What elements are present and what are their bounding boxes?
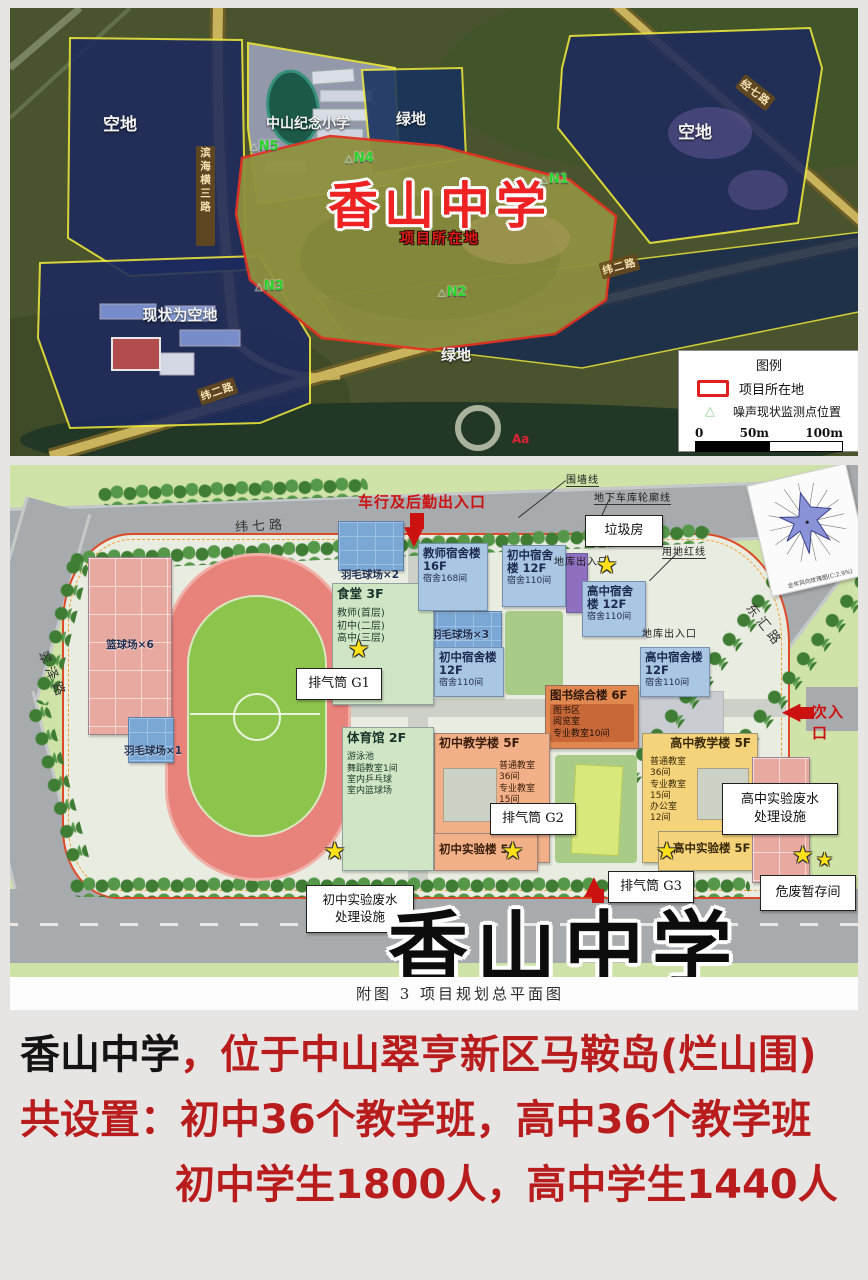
site-plan: 篮球场×6 羽毛球场×1 羽毛球场×2 羽毛球场×3 食堂 3F 教师(首层) … (10, 465, 858, 1010)
monitor-point-n5: N5 (250, 139, 279, 154)
building-name: 初中宿舍楼 12F (435, 648, 503, 677)
building-library: 图书综合楼 6F 图书区 阅览室 专业教室10间 (545, 685, 639, 749)
central-lawn (571, 764, 624, 856)
school-name-text: 香山中学 (20, 1032, 180, 1078)
building-detail: 宿舍110间 (435, 677, 503, 689)
project-subtitle: 项目所在地 (355, 228, 525, 248)
monitor-point-label: N3 (264, 279, 284, 294)
page: 空地 中山纪念小学 绿地 空地 现状为空地 绿地 香山中学 项目所在地 N1 N… (0, 0, 868, 1280)
name-text: 高中教学楼 (670, 736, 730, 750)
scale-labels: 0 50m 100m (695, 426, 843, 440)
building-detail: 宿舍110间 (503, 575, 565, 587)
road-label-weiqi: 纬七路 (235, 514, 287, 536)
entrance-secondary-label: 次入口 (812, 701, 858, 743)
map-legend: 图例 项目所在地 △ 噪声现状监测点位置 0 50m 100m (678, 350, 858, 452)
monitor-star-icon (502, 839, 524, 863)
callout-garbage: 垃圾房 (585, 515, 663, 547)
road-label-binhai: 滨海横三路 (196, 146, 215, 246)
description-line1: 香山中学，位于中山翠亨新区马鞍岛(烂山围) (20, 1022, 817, 1080)
plan-caption: 附图 3 项目规划总平面图 (280, 983, 640, 1004)
building-name: 高中宿舍楼 12F (583, 582, 645, 611)
monitor-point-label: N1 (549, 172, 569, 187)
line-label-garage-exit-b: 地库出入口 (642, 625, 697, 640)
line-label-red-line: 用地红线 (662, 543, 706, 559)
floors-text: 12F (603, 597, 627, 611)
vehicle-entrance-arrow-icon (404, 523, 424, 549)
floors-text: 16F (423, 559, 447, 573)
monitor-star-icon (816, 851, 833, 870)
monitor-point-n2: N2 (438, 285, 467, 300)
building-detail: 普通教室 36间 专业教室 15间 办公室 12间 (646, 756, 698, 825)
scale-bar-segment (769, 442, 843, 451)
callout-hazard: 危废暂存间 (760, 875, 856, 911)
floors-text: 12F (645, 663, 669, 677)
courtyard-garden (505, 611, 563, 695)
scale-bar-segment (696, 442, 769, 451)
site-plan-graphic: 篮球场×6 羽毛球场×1 羽毛球场×2 羽毛球场×3 食堂 3F 教师(首层) … (10, 465, 858, 977)
building-detail: 宿舍110间 (641, 677, 709, 689)
floors-text: 3F (366, 586, 383, 601)
name-text: 图书综合楼 (550, 688, 608, 702)
triangle-icon (438, 285, 447, 300)
name-text: 高中宿舍楼 (645, 650, 703, 664)
zone-label-vacant-sw: 现状为空地 (120, 304, 240, 325)
name-text: 初中宿舍楼 (439, 650, 497, 664)
building-name: 教师宿舍楼 16F (419, 544, 487, 573)
building-name: 初中教学楼 5F (435, 734, 549, 751)
floors-text: 12F (439, 663, 463, 677)
plan-title: 香山中学 (388, 885, 740, 977)
legend-item-noise: △ 噪声现状监测点位置 (697, 403, 858, 420)
monitor-point-label: N2 (447, 285, 467, 300)
description-line3: 初中学生1800人，高中学生1440人 (175, 1152, 838, 1210)
entrance-vehicle-label: 车行及后勤出入口 (358, 491, 486, 512)
name-text: 初中实验楼 (439, 842, 497, 856)
zone-label-green-top: 绿地 (383, 108, 439, 129)
name-text: 初中教学楼 (439, 736, 499, 750)
zone-label-green-bottom: 绿地 (428, 344, 484, 365)
building-teacher-dorm: 教师宿舍楼 16F 宿舍168间 (418, 543, 488, 611)
monitor-point-label: N5 (259, 139, 279, 154)
monitor-star-icon (596, 553, 618, 577)
callout-g2: 排气筒 G2 (490, 803, 576, 835)
description-line2: 共设置：初中36个教学班，高中36个教学班 (20, 1087, 811, 1145)
building-senior-dorm-1: 高中宿舍楼 12F 宿舍110间 (582, 581, 646, 637)
legend-item-project: 项目所在地 (697, 379, 858, 398)
legend-item-label: 项目所在地 (739, 379, 804, 398)
building-name: 高中教学楼 5F (643, 734, 757, 751)
zone-label-vacant-left: 空地 (85, 110, 155, 135)
building-senior-dorm-2: 高中宿舍楼 12F 宿舍110间 (640, 647, 710, 697)
triangle-icon (250, 139, 259, 154)
building-junior-dorm-2: 初中宿舍楼 12F 宿舍110间 (434, 647, 504, 697)
halfway-line (190, 713, 320, 715)
badminton2-label: 羽毛球场×2 (322, 567, 418, 582)
monitor-star-icon (348, 637, 370, 661)
monitor-point-label: N4 (354, 151, 374, 166)
triangle-icon (345, 151, 354, 166)
name-text: 高中实验楼 (673, 841, 731, 855)
noise-point-icon: △ (697, 404, 723, 419)
scale-100: 100m (805, 426, 843, 440)
junior-teach-courtyard (443, 768, 497, 822)
floors-text: 5F (735, 841, 751, 855)
building-name: 图书综合楼 6F (546, 686, 638, 702)
scale-bar (695, 441, 843, 452)
map-watermark: Aa (512, 432, 529, 446)
secondary-entrance-arrow-icon (782, 699, 800, 723)
name-text: 食堂 (337, 586, 362, 601)
building-detail: 图书区 阅览室 专业教室10间 (550, 704, 634, 742)
wind-rose-diagram (748, 465, 858, 580)
scale-50: 50m (740, 426, 769, 440)
legend-item-label: 噪声现状监测点位置 (733, 403, 841, 420)
building-detail: 宿舍168间 (419, 573, 487, 585)
line-label-wall: 围墙线 (566, 471, 599, 487)
monitor-star-icon (656, 839, 678, 863)
floors-text: 2F (389, 730, 406, 745)
building-name: 高中宿舍楼 12F (641, 648, 709, 677)
floors-text: 6F (612, 688, 628, 702)
center-circle (233, 693, 281, 741)
line-label-garage-outline: 地下车库轮廓线 (594, 489, 671, 505)
scale-0: 0 (695, 426, 703, 440)
satellite-map: 空地 中山纪念小学 绿地 空地 现状为空地 绿地 香山中学 项目所在地 N1 N… (10, 8, 858, 456)
callout-senior-waste: 高中实验废水 处理设施 (722, 783, 838, 835)
legend-title: 图例 (679, 355, 858, 374)
monitor-point-n3: N3 (255, 279, 284, 294)
triangle-icon (255, 279, 264, 294)
zone-label-vacant-right: 空地 (655, 118, 735, 143)
monitor-point-n1: N1 (540, 172, 569, 187)
location-text: ，位于中山翠亨新区马鞍岛(烂山围) (180, 1032, 817, 1078)
project-boundary-icon (697, 380, 729, 397)
monitor-star-icon (792, 843, 814, 867)
building-gym: 体育馆 2F 游泳池 舞蹈教室1间 室内乒乓球 室内篮球场 (342, 727, 434, 871)
triangle-icon (540, 172, 549, 187)
monitor-point-n4: N4 (345, 151, 374, 166)
name-text: 体育馆 (347, 730, 385, 745)
name-text: 教师宿舍楼 (423, 546, 481, 560)
badminton1-label: 羽毛球场×1 (108, 743, 198, 758)
callout-g1: 排气筒 G1 (296, 668, 382, 700)
secondary-arrow-stem (800, 707, 814, 719)
basketball-label: 篮球场×6 (80, 637, 180, 652)
floors-text: 5F (503, 736, 520, 750)
floors-text: 12F (523, 561, 547, 575)
floors-text: 5F (734, 736, 751, 750)
monitor-star-icon (324, 839, 346, 863)
building-detail: 游泳池 舞蹈教室1间 室内乒乓球 室内篮球场 (343, 751, 433, 797)
badminton2-courts (338, 521, 404, 571)
building-name: 体育馆 2F (343, 728, 433, 745)
zone-label-school: 中山纪念小学 (248, 113, 368, 133)
building-detail: 宿舍110间 (583, 611, 645, 623)
